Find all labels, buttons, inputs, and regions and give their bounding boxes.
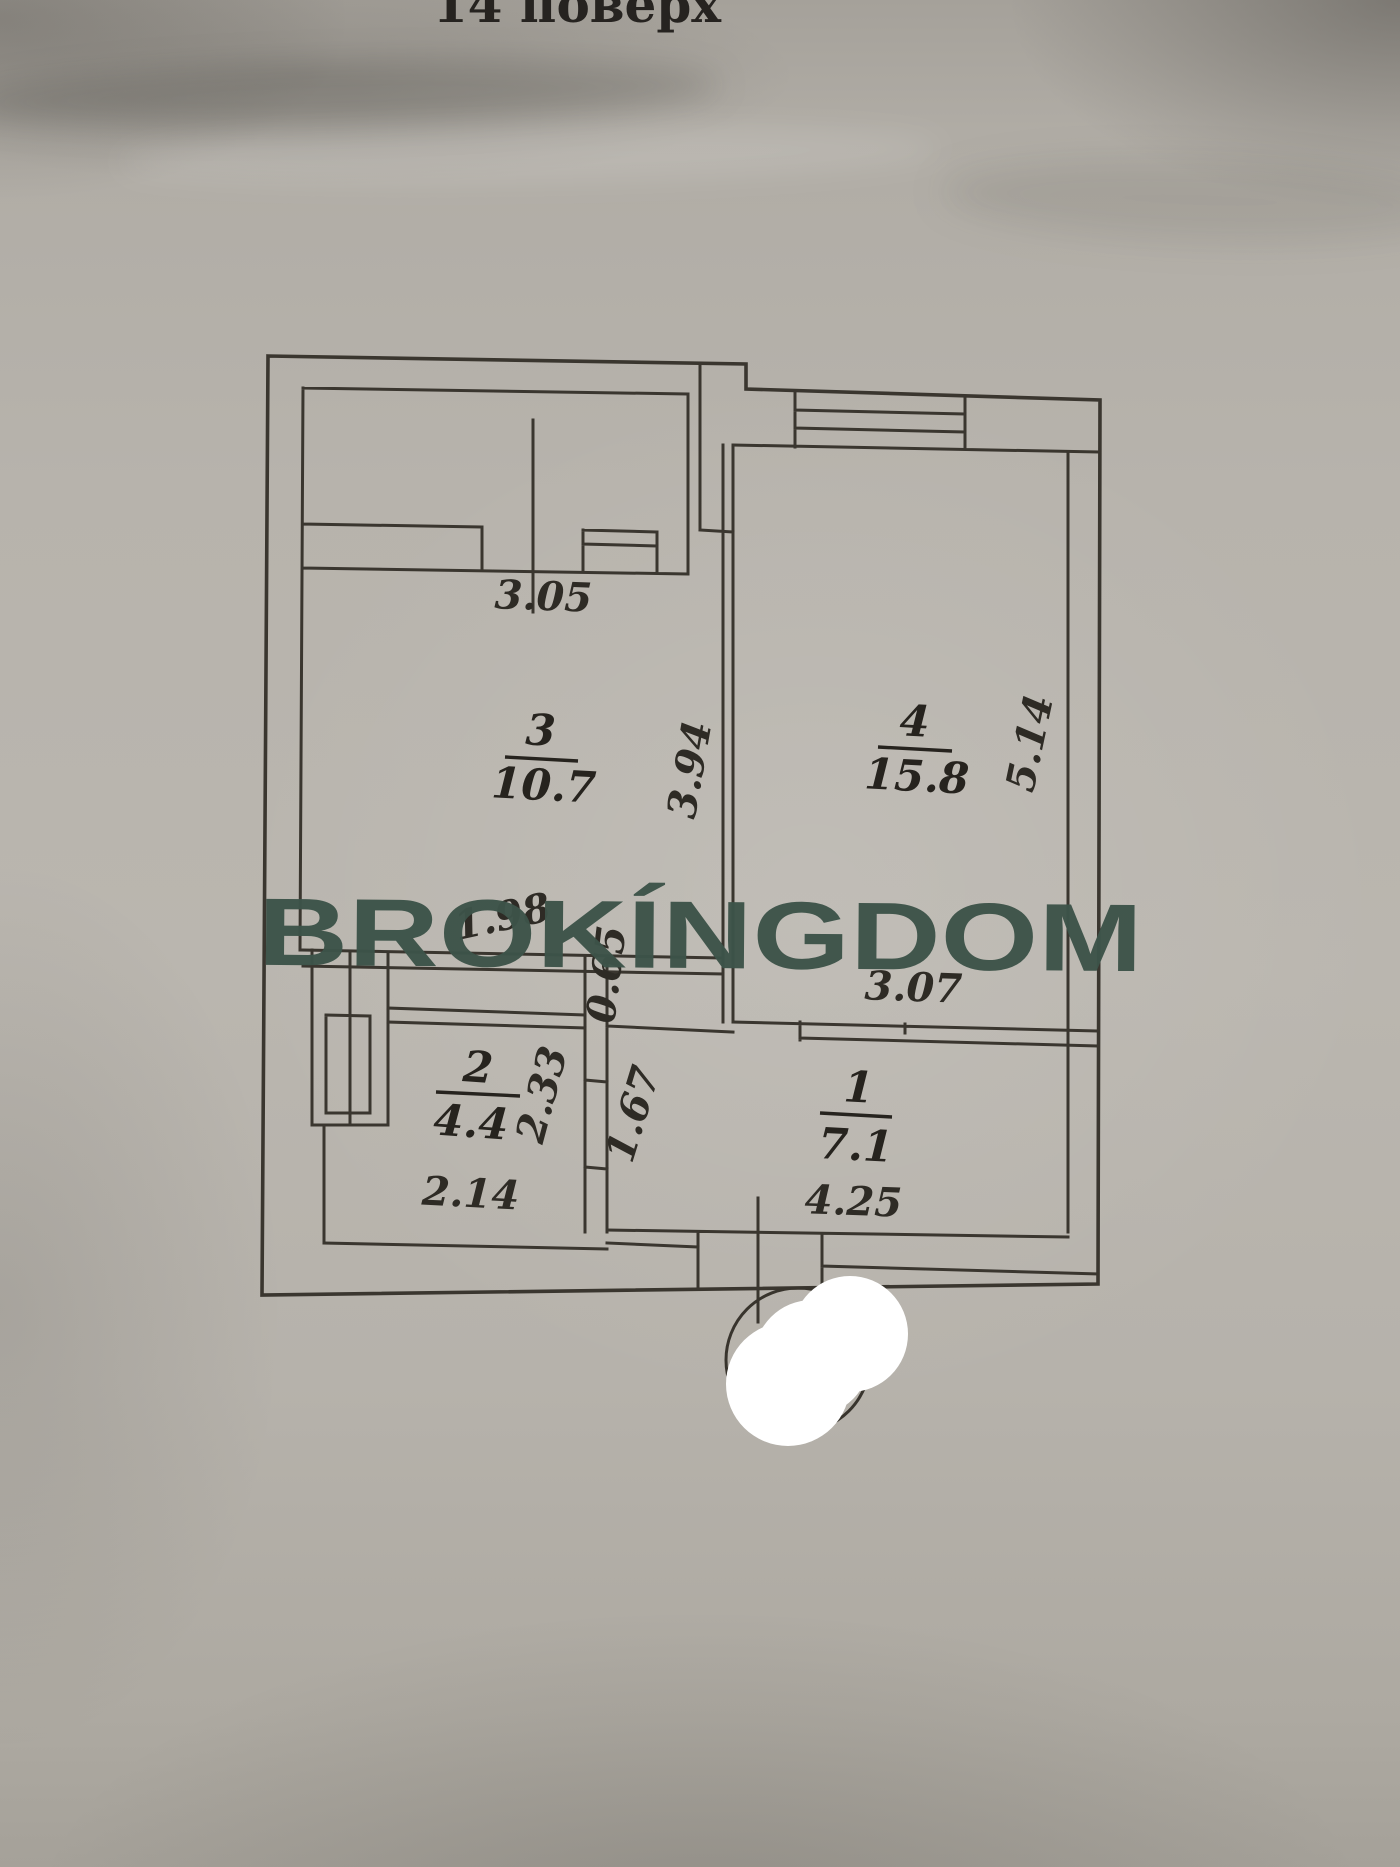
room1-number: 1	[842, 1062, 874, 1113]
room1-fraction-rule	[820, 1113, 892, 1117]
duct-shaft	[312, 950, 388, 1243]
room3-area: 10.7	[490, 758, 597, 813]
room3-number: 3	[524, 705, 556, 756]
dim-room2-height: 2.33	[506, 1041, 577, 1148]
room2-top-wall	[388, 1008, 585, 1028]
balcony-walls	[300, 388, 688, 950]
dim-room3-depth: 3.94	[658, 718, 721, 822]
floor-header-label: 14 поверх	[433, 0, 722, 34]
room4-window	[733, 392, 1098, 452]
dim-room2-width: 2.14	[420, 1167, 521, 1219]
dim-room4-depth: 5.14	[997, 691, 1063, 796]
white-redaction-blob	[726, 1276, 908, 1446]
room4-area: 15.8	[863, 749, 970, 804]
room2-number: 2	[460, 1042, 494, 1094]
room2-area: 4.4	[432, 1095, 510, 1150]
outer-wall	[262, 356, 1100, 1295]
room2-fraction-rule	[436, 1092, 520, 1096]
bottom-walls	[324, 1230, 1098, 1288]
room1-area: 7.1	[817, 1119, 894, 1173]
brokingdom-watermark: BROKÍNGDOM	[257, 879, 1143, 992]
room4-number: 4	[898, 696, 930, 747]
floor-plan-photo: 14 поверх 3 10.7 4 15.8 2	[0, 0, 1400, 1867]
room4-bottom-wall	[733, 1022, 1098, 1046]
dim-hall-width: 4.25	[804, 1176, 903, 1226]
floor-plan-drawing: 14 поверх 3 10.7 4 15.8 2	[0, 0, 1400, 1867]
dim-balcony-width: 3.05	[494, 571, 593, 621]
